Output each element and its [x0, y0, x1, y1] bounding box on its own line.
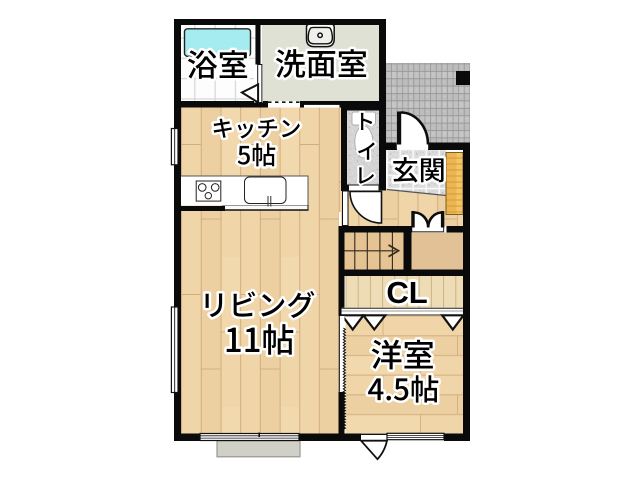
- svg-text:CL: CL: [386, 275, 427, 310]
